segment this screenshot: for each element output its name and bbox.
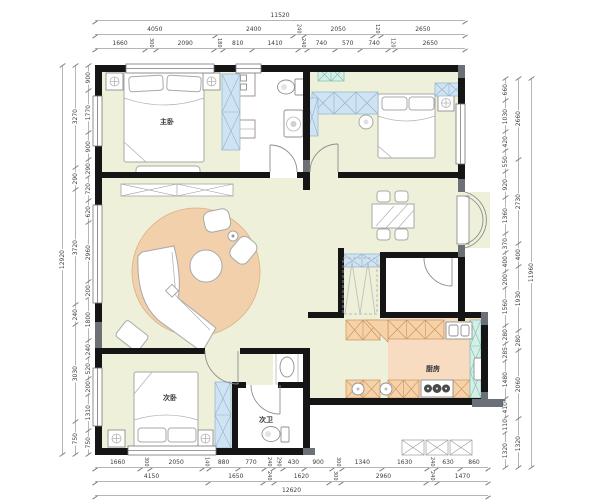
dim-cell: 900: [82, 65, 95, 91]
dim-value: 240: [73, 308, 79, 321]
dim-value: 1320: [503, 442, 509, 459]
dim-cell: 290: [82, 160, 95, 178]
dim-value: 2730: [516, 193, 522, 210]
dim-cell: 1030: [499, 101, 512, 132]
nightstand: [108, 430, 125, 447]
dim-value: 3720: [73, 239, 79, 256]
dim-value: 1030: [503, 108, 509, 125]
dim-cell: 860: [460, 457, 488, 471]
window: [236, 64, 261, 73]
nightstand: [198, 430, 213, 447]
dim-cell: 2050: [304, 24, 373, 38]
dim-value: 290: [276, 457, 281, 467]
dim-cell: 4150: [95, 471, 208, 485]
stool: [359, 115, 373, 129]
room-label-master-bedroom: 主卧: [160, 117, 174, 126]
dim-cell: 1930: [512, 267, 525, 331]
dim-value: 240: [296, 24, 301, 34]
dim-value: 1660: [111, 41, 128, 47]
stove: [421, 380, 453, 397]
dim-value: 300: [332, 471, 337, 481]
dim-value: 570: [341, 41, 354, 47]
dim-cell: 2960: [341, 471, 427, 485]
dim-value: 200: [503, 273, 509, 286]
dim-cell: 740: [360, 38, 388, 52]
dim-value: 11960: [529, 262, 535, 283]
dim-value: 1620: [293, 474, 310, 480]
dim-cell: 400: [512, 244, 525, 267]
dim-cell: 1650: [208, 471, 263, 485]
dim-value: 630: [441, 460, 454, 466]
dim-value: 3270: [73, 108, 79, 125]
dim-cell: 1340: [342, 457, 382, 471]
dim-cell: 620: [82, 201, 95, 223]
dim-cell: 1560: [499, 288, 512, 327]
dim-col-total: 11960: [525, 78, 538, 468]
dim-value: 300: [148, 38, 153, 48]
dim-cell: 300: [332, 457, 342, 471]
dim-value: 430: [287, 460, 300, 466]
dim-value: 370: [503, 237, 509, 250]
dim-cell: 1470: [437, 471, 488, 485]
dim-cell: 900: [82, 133, 95, 159]
washing-machine: [284, 110, 303, 137]
dim-cell: 12620: [95, 485, 488, 499]
dim-cell: 240: [82, 341, 95, 358]
dim-cell: 11520: [95, 10, 465, 24]
dim-value: 2060: [516, 376, 522, 393]
dim-cell: 1800: [82, 298, 95, 341]
dim-value: 2660: [516, 110, 522, 127]
dim-value: 900: [86, 71, 92, 84]
dim-cell: 920: [499, 172, 512, 198]
toilet: [262, 427, 289, 443]
dim-cell: 740: [307, 38, 335, 52]
dim-value: 2400: [245, 27, 262, 33]
nightstand: [106, 73, 123, 90]
dim-value: 750: [73, 432, 79, 445]
dim-value: 240: [266, 471, 271, 481]
dim-cell: 1770: [82, 91, 95, 133]
dim-cell: 285: [499, 344, 512, 361]
dim-value: 880: [217, 460, 230, 466]
dim-cell: 300: [145, 38, 156, 52]
dim-cell: 2960: [82, 223, 95, 282]
guest-bed: [378, 94, 435, 158]
dim-value: 750: [86, 436, 92, 449]
dim-value: 2050: [168, 460, 185, 466]
side-table: [228, 231, 238, 241]
dimensions-top: 11520 4050240024020501202650 16603002090…: [95, 10, 465, 52]
dim-cell: 2650: [381, 24, 465, 38]
dim-cell: 660: [499, 78, 512, 101]
dim-cell: 3720: [69, 190, 82, 305]
dim-cell: 750: [69, 422, 82, 455]
dimensions-bottom: 1660300205014088077024029043090030013401…: [95, 457, 488, 499]
dim-cell: 12920: [56, 65, 69, 455]
dim-value: 290: [73, 172, 79, 185]
dim-value: 410: [503, 401, 509, 414]
dim-cell: 200: [82, 282, 95, 298]
dim-value: 110: [503, 418, 509, 431]
dim-value: 12920: [60, 249, 66, 270]
dim-value: 2050: [330, 27, 347, 33]
dim-value: 420: [503, 135, 509, 148]
dim-value: 1320: [516, 435, 522, 452]
dim-value: 920: [503, 178, 509, 191]
dim-cell: 1320: [512, 419, 525, 468]
dim-value: 240: [300, 38, 305, 48]
dim-value: 240: [429, 471, 434, 481]
dim-value: 2090: [177, 41, 194, 47]
dim-value: 120: [389, 38, 394, 48]
dim-cell: 1410: [252, 38, 297, 52]
dim-value: 810: [231, 41, 244, 47]
dimensions-left: 12920 327029037202403030750 900177090029…: [56, 65, 95, 455]
dim-col-total: 12920: [56, 65, 69, 455]
dim-value: 1310: [86, 404, 92, 421]
dim-value: 740: [315, 41, 328, 47]
dim-cell: 370: [499, 234, 512, 253]
nightstand: [438, 95, 454, 111]
dim-value: 200: [86, 380, 92, 393]
dim-value: 240: [266, 457, 271, 467]
dim-value: 720: [86, 182, 92, 195]
dim-value: 400: [503, 255, 509, 268]
dim-cell: 2400: [215, 24, 293, 38]
second-bed: [134, 372, 198, 448]
dim-cell: 900: [304, 457, 333, 471]
dim-row-total: 12620: [95, 485, 488, 499]
dim-cell: 290: [69, 168, 82, 189]
dim-cell: 140: [202, 457, 209, 471]
dim-value: 900: [311, 460, 324, 466]
dim-cell: 570: [335, 38, 360, 52]
dim-value: 1410: [266, 41, 283, 47]
dim-cell: 2650: [395, 38, 465, 52]
dim-cell: 410: [499, 399, 512, 418]
dim-value: 520: [86, 362, 92, 375]
dim-cell: 1630: [382, 457, 427, 471]
dim-cell: 240: [263, 471, 274, 485]
dim-value: 770: [244, 460, 257, 466]
dim-cell: 200: [82, 379, 95, 395]
dim-col: 9001770900290720620296020018002405202001…: [82, 65, 95, 455]
dim-value: 11520: [269, 13, 290, 19]
dim-value: 620: [86, 205, 92, 218]
dim-row: 41501650240162030029602401470: [95, 471, 488, 485]
dim-value: 1470: [454, 474, 471, 480]
dim-cell: 1310: [82, 395, 95, 431]
dim-cell: 3030: [69, 325, 82, 422]
dim-cell: 2050: [150, 457, 202, 471]
dim-value: 400: [516, 248, 522, 261]
dim-value: 240: [429, 457, 434, 467]
floorplan-page: 主卧 次卧 次卫 厨房 11520 4050240024020501202650…: [0, 0, 600, 504]
dim-cell: 300: [140, 457, 150, 471]
dim-value: 1930: [516, 290, 522, 307]
washbasin-cabinet: [238, 72, 255, 96]
dim-value: 285: [503, 346, 509, 359]
dim-cell: 300: [329, 471, 341, 485]
dim-cell: 400: [499, 253, 512, 272]
dim-cell: 2060: [512, 351, 525, 418]
dim-cell: 1360: [499, 198, 512, 234]
dim-cell: 110: [499, 418, 512, 433]
dim-value: 3030: [73, 365, 79, 382]
dim-cell: 2090: [156, 38, 215, 52]
dim-value: 200: [86, 284, 92, 297]
dim-value: 660: [503, 83, 509, 96]
dim-cell: 2660: [512, 78, 525, 160]
dim-cell: 280: [512, 331, 525, 351]
dim-value: 180: [216, 38, 221, 48]
dim-cell: 1660: [95, 38, 145, 52]
dim-cell: 2730: [512, 160, 525, 244]
window: [456, 104, 465, 164]
window: [126, 64, 214, 73]
dim-cell: 770: [238, 457, 264, 471]
dim-cell: 240: [427, 457, 436, 471]
dimensions-right: 6601030420550920136037040020015602802851…: [499, 78, 538, 468]
dim-value: 120: [374, 24, 379, 34]
dim-cell: 4050: [95, 24, 215, 38]
dim-cell: 240: [426, 471, 437, 485]
dim-cell: 1320: [499, 433, 512, 468]
dim-value: 1360: [503, 207, 509, 224]
dim-cell: 280: [499, 326, 512, 343]
dim-value: 740: [367, 41, 380, 47]
dim-cell: 1660: [95, 457, 140, 471]
dim-value: 240: [86, 343, 92, 356]
dim-cell: 120: [388, 38, 395, 52]
dim-cell: 1620: [274, 471, 329, 485]
dim-cell: 810: [223, 38, 252, 52]
dim-value: 1800: [86, 311, 92, 328]
room-label-kitchen: 厨房: [426, 364, 440, 373]
dim-row: 1660300209018081014102407405707401202650: [95, 38, 465, 52]
dim-value: 1480: [503, 371, 509, 388]
dim-value: 290: [86, 162, 92, 175]
dim-cell: 240: [293, 24, 304, 38]
kitchen-sink: [446, 322, 472, 339]
dim-cell: 200: [499, 272, 512, 288]
dim-cell: 240: [69, 305, 82, 325]
dim-cell: 180: [214, 38, 223, 52]
dim-col: 327029037202403030750: [69, 65, 82, 455]
dim-cell: 550: [499, 151, 512, 172]
dim-value: 900: [86, 140, 92, 153]
dim-cell: 240: [298, 38, 308, 52]
window: [128, 446, 216, 455]
nightstand: [203, 73, 220, 90]
dim-cell: 11960: [525, 78, 538, 468]
dim-value: 140: [203, 457, 208, 467]
dim-cell: 720: [82, 177, 95, 201]
room-label-second-bedroom: 次卧: [163, 393, 177, 402]
dim-cell: 120: [373, 24, 381, 38]
dim-value: 860: [467, 460, 480, 466]
dim-value: 1560: [503, 298, 509, 315]
toilet: [278, 79, 305, 95]
dim-value: 1650: [227, 474, 244, 480]
dim-cell: 240: [264, 457, 273, 471]
dim-value: 4150: [143, 474, 160, 480]
dim-value: 1660: [109, 460, 126, 466]
dim-row: 4050240024020501202650: [95, 24, 465, 38]
dim-value: 4050: [146, 27, 163, 33]
dim-value: 280: [503, 328, 509, 341]
dim-value: 2650: [422, 41, 439, 47]
dim-cell: 630: [436, 457, 460, 471]
dim-value: 2650: [414, 27, 431, 33]
dim-value: 550: [503, 155, 509, 168]
dim-row-total: 11520: [95, 10, 465, 24]
room-label-second-bath: 次卫: [259, 415, 273, 424]
dim-value: 300: [143, 457, 148, 467]
dim-row: 1660300205014088077024029043090030013401…: [95, 457, 488, 471]
dim-cell: 430: [283, 457, 304, 471]
dim-cell: 520: [82, 358, 95, 379]
dim-cell: 880: [209, 457, 237, 471]
dim-col: 6601030420550920136037040020015602802851…: [499, 78, 512, 468]
dim-value: 2960: [86, 244, 92, 261]
dim-cell: 420: [499, 132, 512, 151]
dim-value: 280: [516, 334, 522, 347]
dim-cell: 3270: [69, 65, 82, 168]
dim-value: 2960: [375, 474, 392, 480]
dim-value: 1340: [354, 460, 371, 466]
dim-cell: 750: [82, 431, 95, 455]
dim-cell: 290: [273, 457, 283, 471]
dim-value: 300: [335, 457, 340, 467]
dim-cell: 1480: [499, 361, 512, 399]
dim-value: 12620: [281, 488, 302, 494]
dim-value: 1770: [86, 104, 92, 121]
dim-col: 26602730400193028020601320: [512, 78, 525, 468]
bath-cabinet: [238, 120, 255, 138]
dim-value: 1630: [396, 460, 413, 466]
